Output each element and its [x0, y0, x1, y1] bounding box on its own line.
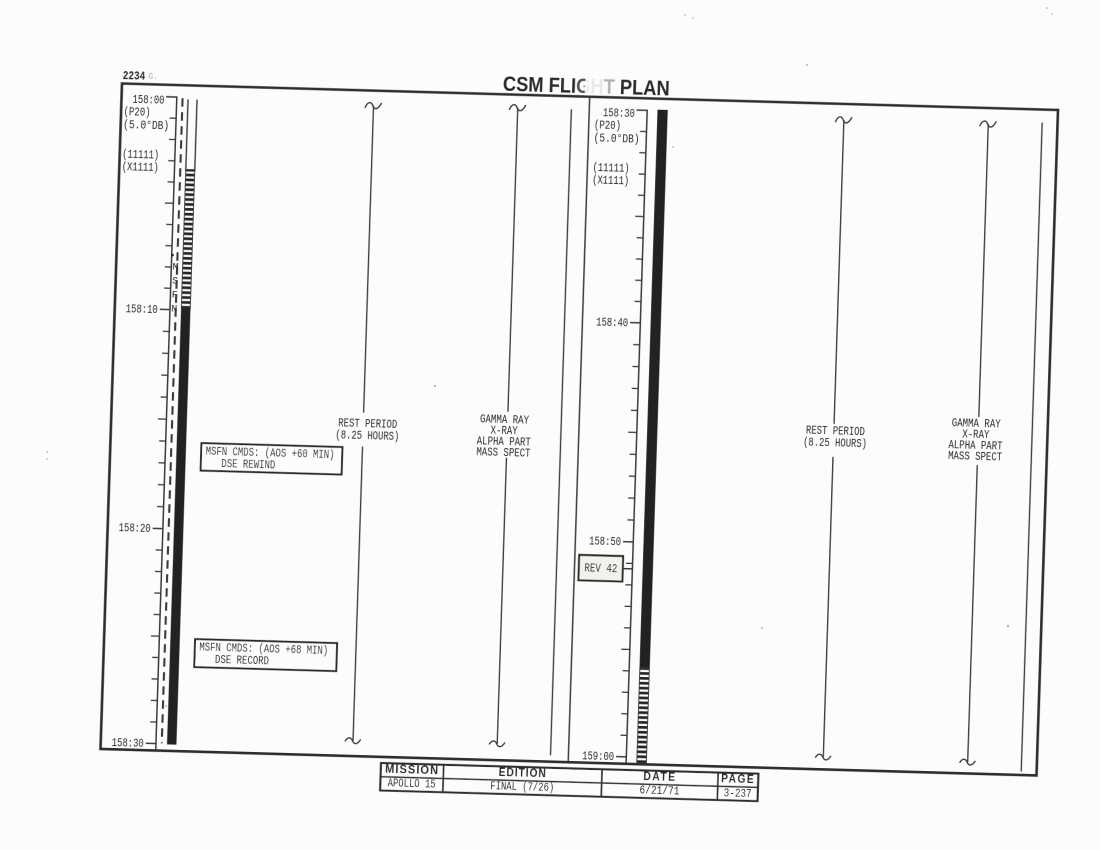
- svg-text:MISSION: MISSION: [385, 764, 439, 778]
- svg-text:DSE RECORD: DSE RECORD: [215, 654, 269, 669]
- svg-text:REV 42: REV 42: [584, 562, 617, 576]
- svg-text:158:20: 158:20: [118, 522, 150, 536]
- svg-text:N: N: [171, 303, 177, 315]
- svg-text:(P20): (P20): [123, 106, 150, 120]
- svg-text:158:30: 158:30: [112, 737, 144, 751]
- svg-text:2234: 2234: [123, 70, 146, 84]
- svg-text:MASS SPECT: MASS SPECT: [476, 446, 530, 461]
- svg-text:G.: G.: [148, 71, 158, 82]
- svg-text:159:00: 159:00: [582, 750, 614, 764]
- svg-text:(P20): (P20): [594, 119, 621, 133]
- svg-text:M: M: [172, 261, 178, 273]
- svg-text:S: S: [172, 275, 178, 287]
- svg-text:(5.0°DB): (5.0°DB): [593, 133, 639, 147]
- svg-text:3-237: 3-237: [723, 787, 751, 801]
- svg-text:158:10: 158:10: [126, 303, 158, 317]
- svg-text:158:50: 158:50: [589, 535, 621, 549]
- svg-text:(5.0°DB): (5.0°DB): [123, 119, 169, 133]
- svg-text:DSE REWIND: DSE REWIND: [221, 458, 275, 473]
- svg-text:PAGE: PAGE: [721, 773, 755, 787]
- svg-text:APOLLO 15: APOLLO 15: [387, 777, 435, 792]
- svg-text:(X1111): (X1111): [592, 174, 629, 189]
- svg-text:(8.25 HOURS): (8.25 HOURS): [335, 429, 399, 444]
- svg-text:(X1111): (X1111): [122, 161, 159, 176]
- svg-text:DATE: DATE: [643, 771, 676, 785]
- svg-text:158:40: 158:40: [596, 316, 628, 330]
- svg-text:FINAL (7/26): FINAL (7/26): [490, 780, 554, 795]
- svg-text:F: F: [172, 289, 178, 301]
- svg-text:EDITION: EDITION: [499, 766, 547, 780]
- svg-text:MASS SPECT: MASS SPECT: [948, 450, 1002, 465]
- svg-text:6/21/71: 6/21/71: [639, 785, 679, 799]
- svg-text:(8.25 HOURS): (8.25 HOURS): [803, 436, 867, 451]
